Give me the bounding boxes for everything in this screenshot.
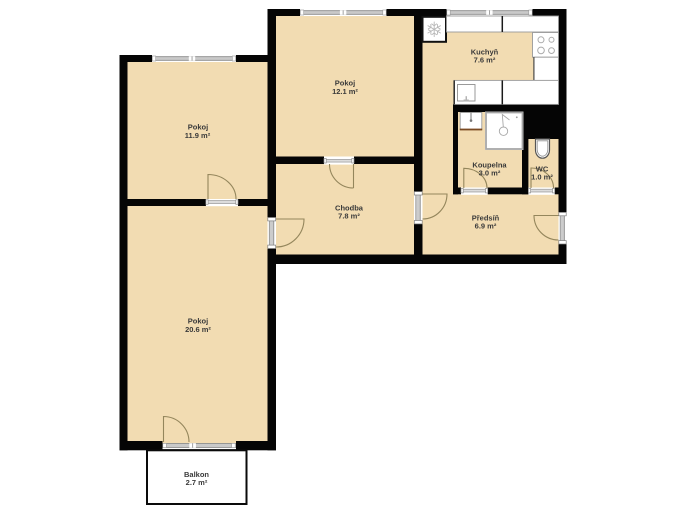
svg-text:12.1 m²: 12.1 m² xyxy=(332,87,358,96)
svg-text:3.0 m²: 3.0 m² xyxy=(479,168,501,177)
svg-text:6.9 m²: 6.9 m² xyxy=(475,221,497,230)
svg-text:7.8 m²: 7.8 m² xyxy=(338,211,360,220)
svg-text:7.6 m²: 7.6 m² xyxy=(474,55,496,64)
svg-text:1.0 m²: 1.0 m² xyxy=(531,173,553,182)
svg-text:2.7 m²: 2.7 m² xyxy=(186,478,208,487)
svg-text:11.9 m²: 11.9 m² xyxy=(185,131,211,140)
svg-text:20.6 m²: 20.6 m² xyxy=(185,325,211,334)
